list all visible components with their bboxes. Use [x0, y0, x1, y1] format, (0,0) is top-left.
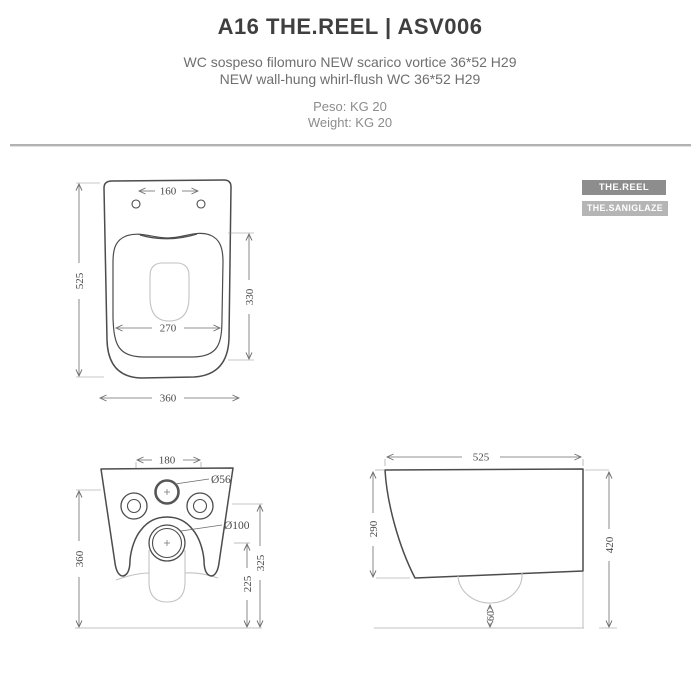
dim-width: 360: [160, 393, 177, 405]
dim-bowl-length: 330: [244, 288, 256, 305]
fixing-bush-left-outer: [121, 493, 147, 519]
datasheet-page: A16 THE.REEL | ASV006 WC sospeso filomur…: [0, 0, 700, 700]
dim-outlet-offset: 60: [486, 611, 497, 621]
dim-depth: 525: [74, 272, 86, 289]
toilet-side-outline: [385, 469, 583, 578]
dim-bowl-width: 270: [160, 323, 177, 335]
dim-back-height: 360: [74, 550, 86, 567]
dim-inlet-diameter: Ø56: [211, 474, 231, 486]
dim-fixing-spacing: 180: [159, 455, 176, 467]
dim-fixing-height: 325: [255, 554, 267, 571]
dim-side-depth: 525: [473, 452, 490, 464]
side-view-drawing: 525 290 420 60: [368, 452, 617, 629]
dim-outlet-center-height: 225: [242, 575, 254, 592]
fixing-bush-right-outer: [187, 493, 213, 519]
toilet-plan-outline: [104, 180, 231, 378]
back-view-drawing: 180 Ø56 Ø100 360 325 225: [74, 455, 267, 629]
outlet-trap-arc: [458, 573, 522, 603]
dim-hole-spacing: 160: [160, 186, 177, 198]
top-view-drawing: 160 525 330 270 360: [74, 180, 256, 405]
dim-front-height: 290: [368, 520, 380, 537]
dim-outlet-diameter: Ø100: [224, 520, 250, 532]
technical-drawings: 160 525 330 270 360: [0, 0, 700, 700]
dim-total-height: 420: [604, 536, 616, 553]
